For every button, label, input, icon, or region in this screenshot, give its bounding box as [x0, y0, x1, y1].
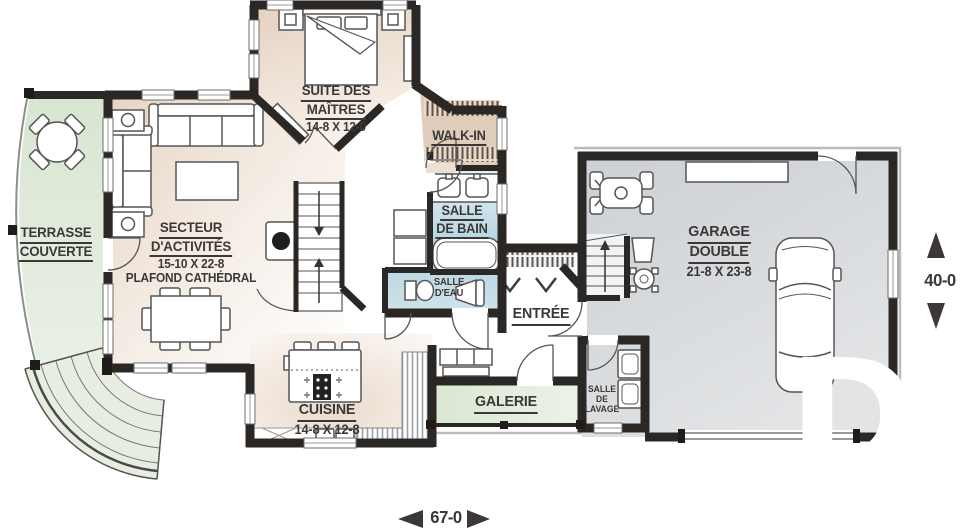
living-label: SECTEUR D'ACTIVITÉS 15-10 X 22-8 PLAFOND…: [126, 220, 256, 285]
terrace-label: TERRASSE COUVERTE: [19, 225, 93, 262]
powder-label: SALLE D'EAU: [434, 277, 464, 299]
dim-up-arrow-icon: [927, 232, 945, 258]
kitchen-island: [284, 342, 361, 402]
dining-set: [142, 288, 230, 350]
bath-label: SALLE DE BAIN: [435, 203, 488, 239]
coffee-table: [176, 162, 238, 200]
laundry-label: SALLE DE LAVAGE: [585, 384, 619, 414]
entry-closet-rail: [502, 252, 574, 267]
width-dimension: 67-0: [430, 508, 461, 528]
coat-hook-icon: [500, 278, 556, 291]
watermark-d: D: [788, 326, 919, 510]
entry-bench: [440, 349, 492, 376]
sofa: [149, 104, 263, 146]
patio-table-top: [37, 122, 77, 162]
walkin-label: WALK-IN: [431, 128, 486, 146]
garage-stairs: [584, 234, 627, 298]
garage-label: GARAGE DOUBLE 21-8 X 23-8: [687, 224, 752, 279]
dim-left-arrow-icon: [398, 510, 423, 528]
bath-vanity: [432, 174, 500, 202]
end-table-top: [112, 110, 144, 131]
gallery-label: GALERIE: [474, 394, 538, 414]
dim-right-arrow-icon: [467, 510, 490, 528]
master-label: SUITE DES MAÎTRES 14-8 X 12-0: [301, 83, 371, 134]
garage-shelf: [686, 162, 788, 182]
loveseat: [112, 126, 152, 216]
toilet: [405, 281, 434, 301]
depth-dimension: 40-0: [924, 271, 955, 291]
linen-closet: [394, 210, 426, 236]
dim-down-arrow-icon: [927, 303, 945, 329]
stove: [313, 374, 331, 400]
bathtub: [433, 238, 500, 272]
entry-label: ENTRÉE: [512, 306, 571, 326]
floor-plan: D TERRASSE COUVERTE SECTEUR D'ACTIVITÉS …: [0, 0, 960, 531]
linen-closet: [394, 238, 426, 264]
kitchen-label: CUISINE 14-8 X 12-8: [295, 402, 360, 437]
